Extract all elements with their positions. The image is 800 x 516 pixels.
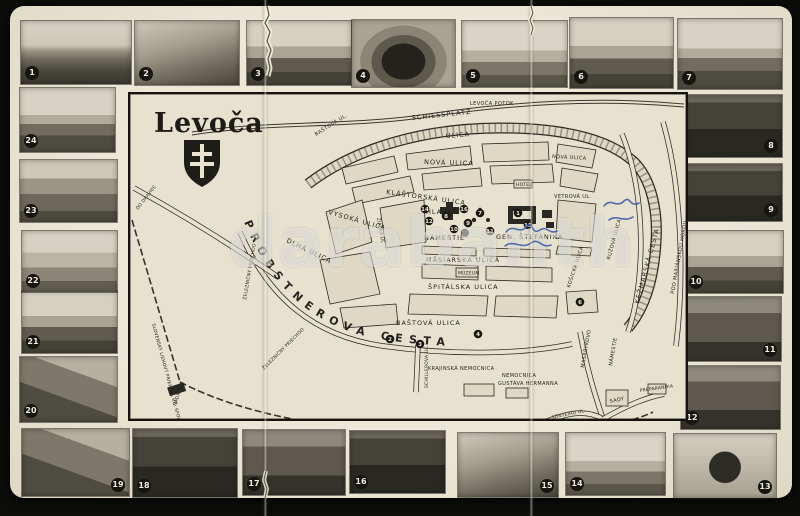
photo-chapel-interior: 17 <box>243 430 345 495</box>
svg-text:6: 6 <box>578 300 582 306</box>
svg-text:7: 7 <box>478 211 482 217</box>
photo-carved-altar: 15 <box>458 433 558 497</box>
photo-number-badge: 19 <box>111 478 125 492</box>
label-schiessplatz-ulica: ULICA <box>446 130 471 140</box>
svg-text:2: 2 <box>388 337 392 343</box>
photo-town-walls-ruins: 2 <box>135 21 239 85</box>
photo-number-badge: 24 <box>24 134 38 148</box>
photo-courtyard-staircase: 20 <box>20 357 117 422</box>
svg-text:4: 4 <box>476 332 480 338</box>
photo-town-park: 23 <box>20 160 117 222</box>
photo-number-badge: 1 <box>25 66 39 80</box>
photo-number-badge: 11 <box>763 343 777 357</box>
label-schiessplatz: SCHIESSPLATZ <box>411 108 471 122</box>
label-nemocnica: NEMOCNICA <box>502 373 537 379</box>
photo-number-badge: 7 <box>682 71 696 85</box>
map-title: Levoča <box>154 108 264 139</box>
label-vetrova: VETROVÁ UL. <box>554 193 592 200</box>
photo-spis-castle: 24 <box>20 88 115 152</box>
photo-number-badge: 4 <box>356 69 370 83</box>
photo-number-badge: 20 <box>24 404 38 418</box>
svg-text:15: 15 <box>524 223 532 229</box>
town-map-drawing: Levoča LEVOČA POTOK SCHIESSPLATZ ULICA B… <box>128 92 688 421</box>
svg-text:14: 14 <box>421 207 429 213</box>
photo-number-badge: 23 <box>24 204 38 218</box>
label-namestie: NÁMESTIE <box>424 233 465 242</box>
photo-guild-hall-interior: 12 <box>681 366 780 429</box>
photo-number-badge: 22 <box>26 274 40 288</box>
label-spitalska: ŠPITÁLSKA ULICA <box>428 282 499 291</box>
label-bastova-south: BAŠTOVÁ ULICA <box>396 318 461 327</box>
photo-number-badge: 6 <box>574 70 588 84</box>
photo-town-panorama: 1 <box>21 21 131 84</box>
svg-text:1: 1 <box>516 211 520 217</box>
photo-number-badge: 21 <box>26 335 40 349</box>
label-gustava-hermanna: GUSTÁVA HERMANNA <box>498 380 558 387</box>
svg-text:11: 11 <box>486 229 494 235</box>
photo-manor-house: 6 <box>570 18 673 88</box>
label-ruzova: RUŽOVÁ ULICA <box>604 218 623 261</box>
svg-text:9: 9 <box>466 221 470 227</box>
photo-lourdes-grotto: 4 <box>352 20 455 87</box>
label-nova-ulica: NOVÁ ULICA <box>424 157 474 168</box>
photo-number-badge: 13 <box>758 480 772 494</box>
photo-number-badge: 14 <box>570 477 584 491</box>
photo-number-badge: 5 <box>466 69 480 83</box>
photo-number-badge: 18 <box>137 479 151 493</box>
town-map: Levoča LEVOČA POTOK SCHIESSPLATZ ULICA B… <box>128 92 688 421</box>
photo-building-with-wall: 3 <box>247 21 351 85</box>
label-dlha: DLHÁ ULICA <box>285 236 333 266</box>
photo-spa-building: 21 <box>22 291 117 353</box>
svg-text:12: 12 <box>425 219 433 225</box>
photo-town-hall: 10 <box>685 231 783 293</box>
photo-number-badge: 15 <box>540 479 554 493</box>
label-zeleznicny-priechod-2: ŽELEZNIČNÝ PRIECHOD <box>260 325 306 371</box>
label-muzeum: MÚZEUM <box>458 270 479 277</box>
coat-of-arms <box>184 140 220 187</box>
photo-altar-detail: 9 <box>683 164 782 221</box>
svg-text:3: 3 <box>418 342 422 348</box>
label-gen-stefanika: GEN. ŠTEFÁNIKA <box>496 232 563 241</box>
photo-number-badge: 10 <box>689 275 703 289</box>
label-hotel: HOTEL <box>516 182 532 188</box>
photo-number-badge: 17 <box>247 477 261 491</box>
photo-street-view-churches: 14 <box>566 433 665 495</box>
photo-monastery-corridor: 18 <box>133 429 237 497</box>
photo-church-interior: 8 <box>685 95 782 157</box>
photo-number-badge: 2 <box>139 67 153 81</box>
photo-marianska-hora: 22 <box>22 231 117 292</box>
label-krajinska-nemocnica: KRAJINSKÁ NEMOCNICA <box>428 365 495 372</box>
label-masiarska: MÄSIARSKA ULICA <box>426 255 500 264</box>
svg-text:16: 16 <box>460 207 468 213</box>
photo-cage-of-shame: 13 <box>674 434 776 498</box>
label-levoca-potok: LEVOČA POTOK <box>470 100 514 107</box>
photo-arcade-passage: 11 <box>681 297 781 361</box>
photo-number-badge: 3 <box>251 67 265 81</box>
photo-number-badge: 9 <box>764 203 778 217</box>
photo-number-badge: 8 <box>764 139 778 153</box>
svg-text:8: 8 <box>444 214 448 220</box>
photo-main-altar: 16 <box>350 431 445 493</box>
photo-church-with-monument: 5 <box>462 21 567 87</box>
scanned-postcard-stage: 1 2 3 4 5 6 7 8 9 10 11 12 13 14 15 16 1… <box>0 0 800 516</box>
photo-church-portal: 19 <box>22 429 129 496</box>
label-masarykovo-nam: NÁMESTIE <box>607 337 619 366</box>
svg-text:10: 10 <box>450 227 458 233</box>
photo-st-james-church: 7 <box>678 19 782 89</box>
photo-number-badge: 16 <box>354 475 368 489</box>
